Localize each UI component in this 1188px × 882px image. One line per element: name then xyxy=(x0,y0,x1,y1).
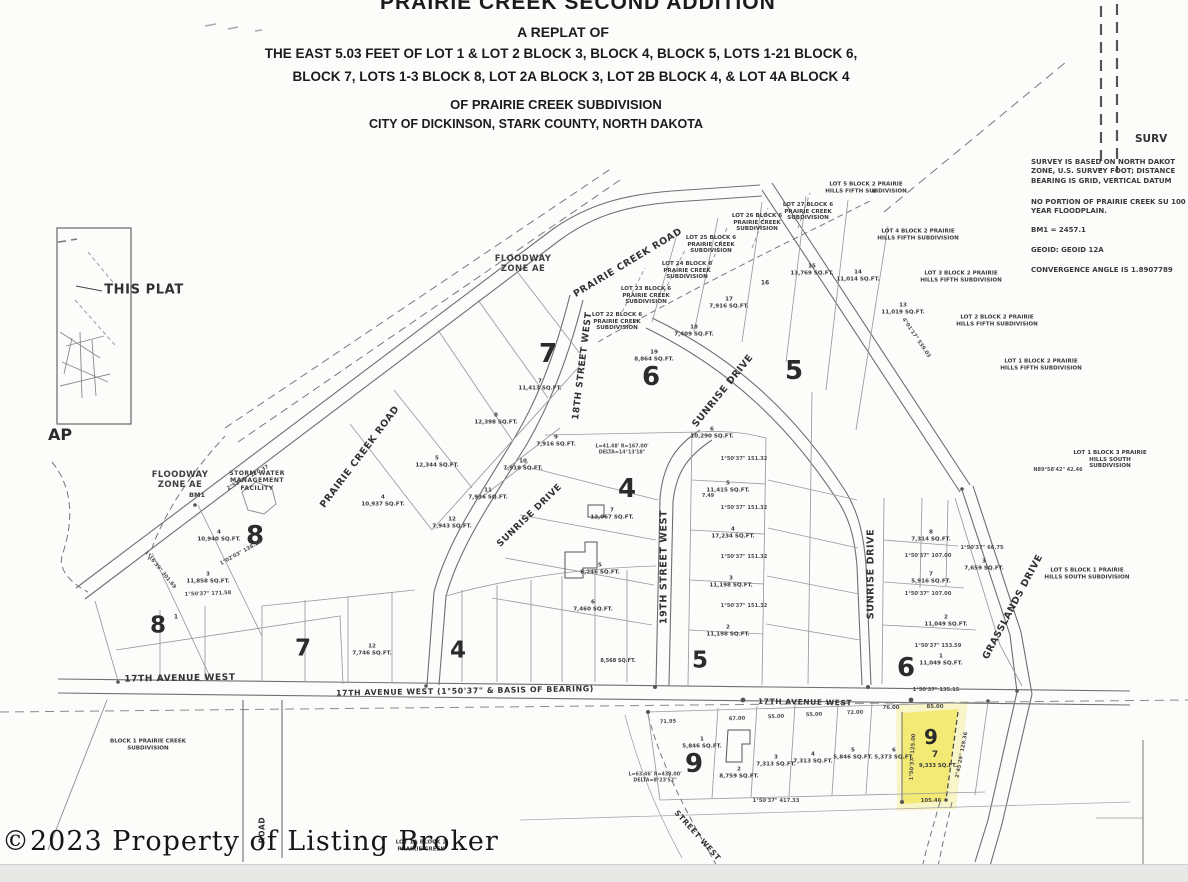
lot-b6c-8: 8 7,314 SQ.FT. xyxy=(911,529,950,542)
lot-b8-4: 4 10,940 SQ.FT. xyxy=(197,529,240,542)
plat-city-county-state: CITY OF DICKINSON, STARK COUNTY, NORTH D… xyxy=(366,117,706,131)
lot-b6-17: 17 7,916 SQ.FT. xyxy=(709,296,748,309)
lot-b9-2: 2 8,759 SQ.FT. xyxy=(719,766,758,779)
lot-b6c-3: 3 7,659 SQ.FT. xyxy=(964,558,1003,571)
dim-hl-top: 85.00 xyxy=(926,704,943,710)
dim-curve-mid: L=41.48' R=167.00' DELTA=14°13'18" xyxy=(595,444,648,455)
lot-b4-7: 7 12,067 SQ.FT. xyxy=(590,507,633,520)
street-17th-avenue-west-right: 17TH AVENUE WEST xyxy=(758,698,852,708)
lot-b6-19: 19 8,864 SQ.FT. xyxy=(634,349,673,362)
adj-lot-26-block-6: LOT 26 BLOCK 6 PRAIRIE CREEK SUBDIVISION xyxy=(732,213,782,233)
dim-b5-151a: 1°50'37" 151.32 xyxy=(721,505,768,511)
dim-b9-6700: 67.00 xyxy=(729,716,746,723)
plat-map-page: PRAIRIE CREEK SECOND ADDITION A REPLAT O… xyxy=(0,0,1188,882)
lot-b4l-sqft: 8,568 SQ.FT. xyxy=(600,659,635,665)
vicinity-map-box xyxy=(57,228,131,424)
dim-b6c-107b: 1°50'37" 107.00 xyxy=(905,591,952,597)
lot-b6-14: 14 11,014 SQ.FT. xyxy=(836,269,879,282)
dim-b9-bottom: 1°50'37" 417.33 xyxy=(753,798,800,804)
adj-lot-5-block-2-ph5: LOT 5 BLOCK 2 PRAIRIE HILLS FIFTH SUBDIV… xyxy=(825,181,907,194)
block-6-upper-numeral: 6 xyxy=(642,364,660,390)
street-17th-avenue-west-left: 17TH AVENUE WEST xyxy=(124,673,235,686)
survey-note-geoid: GEOID: GEOID 12A xyxy=(1031,246,1188,255)
adj-lot-24-block-6: LOT 24 BLOCK 6 PRAIRIE CREEK SUBDIVISION xyxy=(662,261,712,281)
block-4-upper-numeral: 4 xyxy=(618,476,636,502)
survey-note-bm1: BM1 = 2457.1 xyxy=(1031,226,1188,235)
dim-ne-42: N89°58'42" 42.46 xyxy=(1033,468,1082,474)
adj-lot-2-block-2-ph5: LOT 2 BLOCK 2 PRAIRIE HILLS FIFTH SUBDIV… xyxy=(956,314,1038,327)
survey-monuments xyxy=(116,189,1019,804)
lot-b7-12: 12 7,943 SQ.FT. xyxy=(432,516,471,529)
lot-b9-3: 3 7,313 SQ.FT. xyxy=(756,754,795,767)
adj-lot-23-block-6: LOT 23 BLOCK 6 PRAIRIE CREEK SUBDIVISION xyxy=(621,286,671,306)
zone-floodway-upper: FLOODWAY ZONE AE xyxy=(495,254,552,274)
vicinity-caption-fragment: AP xyxy=(48,427,72,443)
this-plat-label: THIS PLAT xyxy=(104,282,184,297)
bm1-label: BM1 xyxy=(189,492,205,500)
block-6-lower-numeral: 6 xyxy=(897,655,915,681)
block-8-lower-numeral: 8 xyxy=(150,615,166,638)
lot-b7-10: 10 7,918 SQ.FT. xyxy=(503,458,542,471)
dim-b6c-66: 1°50'37" 66.75 xyxy=(960,545,1003,551)
block-4-lower-numeral: 4 xyxy=(450,640,466,663)
lot-b5-6: 6 10,290 SQ.FT. xyxy=(690,426,733,439)
dim-749: 7.49 xyxy=(702,494,714,500)
adj-lot-22-block-6: LOT 22 BLOCK 6 PRAIRIE CREEK SUBDIVISION xyxy=(592,312,642,332)
block-7-upper-numeral: 7 xyxy=(539,341,557,367)
lot-b5-2: 2 11,198 SQ.FT. xyxy=(706,624,749,637)
lot-b7-9: 9 7,916 SQ.FT. xyxy=(536,434,575,447)
lot-b9-5: 5 5,846 SQ.FT. xyxy=(833,747,872,760)
adj-lot-1-block-3-phs: LOT 1 BLOCK 3 PRAIRIE HILLS SOUTH SUBDIV… xyxy=(1071,450,1149,470)
lot-b8-1: 1 xyxy=(174,613,178,620)
lot-b6-16: 16 xyxy=(761,279,769,286)
lot-b6-15: 15 13,769 SQ.FT. xyxy=(790,263,833,276)
lot-b6c-2: 2 11,049 SQ.FT. xyxy=(924,614,967,627)
scan-artifacts xyxy=(205,24,262,31)
dim-b6c-153: 1°50'37" 153.59 xyxy=(915,643,962,649)
block-7-lower-numeral: 7 xyxy=(295,638,311,661)
block-5-lower-numeral: 5 xyxy=(692,650,708,673)
adj-lot-25-block-6: LOT 25 BLOCK 6 PRAIRIE CREEK SUBDIVISION xyxy=(686,235,736,255)
survey-note-convergence: CONVERGENCE ANGLE IS 1.8907789 xyxy=(1031,266,1188,275)
lot-b4-6: 6 7,460 SQ.FT. xyxy=(573,599,612,612)
lot-b4-5: 5 8,246 SQ.FT. xyxy=(580,562,619,575)
adj-lot-27-block-6: LOT 27 BLOCK 6 PRAIRIE CREEK SUBDIVISION xyxy=(783,202,833,222)
this-plat-leader-line xyxy=(76,286,102,291)
lot-b9-4: 4 7,313 SQ.FT. xyxy=(793,751,832,764)
street-sunrise-drive-south: SUNRISE DRIVE xyxy=(865,529,876,619)
dim-hl-bottom: 105.46 xyxy=(921,798,942,804)
highlighted-lot-area: 9,333 SQ.FT. xyxy=(919,763,957,769)
lot-b8-3: 3 11,858 SQ.FT. xyxy=(186,571,229,584)
survey-notes-heading-fragment: SURV xyxy=(1135,133,1167,145)
dim-hl-left-col: 76.00 xyxy=(882,705,899,711)
lot-b5-4: 4 17,234 SQ.FT. xyxy=(711,526,754,539)
dim-b9-7200: 72.00 xyxy=(847,710,864,717)
dim-b6c-107a: 1°50'37" 107.00 xyxy=(905,553,952,559)
lot-b7-7: 7 11,413 SQ.FT. xyxy=(518,378,561,391)
lot-b7-11: 11 7,936 SQ.FT. xyxy=(468,487,507,500)
zone-floodway-left: FLOODWAY ZONE AE xyxy=(152,470,209,490)
dim-b9-5500b: 55.00 xyxy=(806,712,823,719)
adj-lot-4-block-2-ph5: LOT 4 BLOCK 2 PRAIRIE HILLS FIFTH SUBDIV… xyxy=(877,228,959,241)
dim-b6-south: 1°50'37" 135.15 xyxy=(913,687,960,693)
lot-b9-1: 1 5,846 SQ.FT. xyxy=(682,736,721,749)
lot-b6c-1: 1 11,049 SQ.FT. xyxy=(919,653,962,666)
survey-note-floodplain: NO PORTION OF PRAIRIE CREEK SU 100 YEAR … xyxy=(1031,198,1188,217)
dim-curve-19th: L=63.46' R=433.00' DELTA=8°23'52" xyxy=(628,772,681,783)
dim-b5-151c: 1°50'37" 151.32 xyxy=(721,603,768,609)
dim-b5-151d: 1°50'37" 151.32 xyxy=(721,456,768,462)
block-5-upper-numeral: 5 xyxy=(785,358,803,384)
lot-b9-6: 6 5,373 SQ.FT. xyxy=(874,747,913,760)
lot-b6-13: 13 11,019 SQ.FT. xyxy=(881,302,924,315)
block-9-west-numeral: 9 xyxy=(685,751,703,777)
scan-edge-strip xyxy=(0,864,1188,882)
dim-b9-5500a: 55.00 xyxy=(768,714,785,721)
lot-b6-18: 18 7,409 SQ.FT. xyxy=(674,324,713,337)
lot-b7l-12: 12 7,746 SQ.FT. xyxy=(352,643,391,656)
plat-subtitle-replat: A REPLAT OF xyxy=(463,24,663,40)
plat-subdivision-name: OF PRAIRIE CREEK SUBDIVISION xyxy=(406,97,706,112)
survey-note-datum: SURVEY IS BASED ON NORTH DAKOT ZONE, U.S… xyxy=(1031,158,1188,186)
lot-b5-5: 5 11,415 SQ.FT. xyxy=(706,480,749,493)
adj-lot-5-block-1-phs: LOT 5 BLOCK 1 PRAIRIE HILLS SOUTH SUBDIV… xyxy=(1044,567,1129,580)
lot-b5-3: 3 11,198 SQ.FT. xyxy=(709,575,752,588)
highlighted-lot-number: 7 xyxy=(932,750,938,760)
highlighted-lot-block-numeral: 9 xyxy=(924,725,938,749)
plat-replat-description-1: THE EAST 5.03 FEET OF LOT 1 & LOT 2 BLOC… xyxy=(261,46,861,61)
lot-b6c-7: 7 5,916 SQ.FT. xyxy=(911,571,950,584)
adj-lot-1-block-2-ph5: LOT 1 BLOCK 2 PRAIRIE HILLS FIFTH SUBDIV… xyxy=(1000,358,1082,371)
lot-b7-4: 4 10,937 SQ.FT. xyxy=(361,494,404,507)
adj-lot-3-block-2-ph5: LOT 3 BLOCK 2 PRAIRIE HILLS FIFTH SUBDIV… xyxy=(920,270,1002,283)
lot-b7-5: 5 12,344 SQ.FT. xyxy=(415,455,458,468)
adj-block-1-pcs: BLOCK 1 PRAIRIE CREEK SUBDIVISION xyxy=(110,738,186,751)
plat-replat-description-2: BLOCK 7, LOTS 1-3 BLOCK 8, LOT 2A BLOCK … xyxy=(281,69,861,84)
street-19th-street-west: 19TH STREET WEST xyxy=(658,510,669,624)
dim-b9-7195: 71.95 xyxy=(660,719,677,726)
lot-b7-8: 8 12,398 SQ.FT. xyxy=(474,412,517,425)
listing-broker-watermark: ©2023 Property of Listing Broker xyxy=(2,826,499,857)
dim-b5-151b: 1°50'37" 151.32 xyxy=(721,554,768,560)
plat-title: PRAIRIE CREEK SECOND ADDITION xyxy=(380,0,760,15)
